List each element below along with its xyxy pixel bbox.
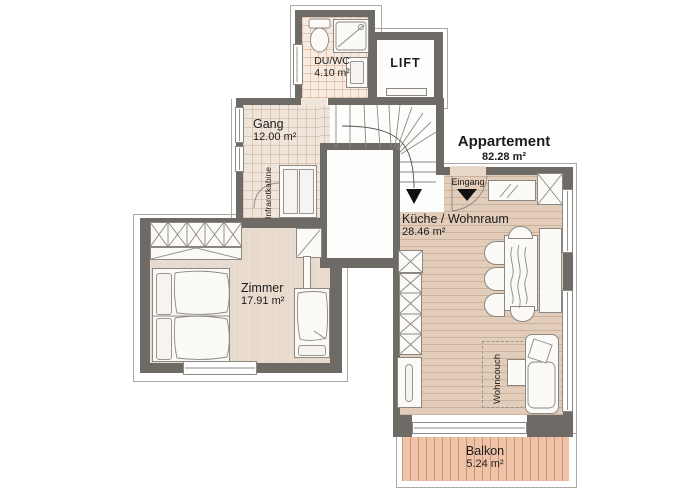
entry-wardrobe xyxy=(537,173,563,205)
wall xyxy=(236,98,300,105)
wall xyxy=(527,415,573,437)
room-name: DU/WC xyxy=(299,56,365,68)
infrared-cabin-label: Infrarotkabine xyxy=(264,163,274,219)
room-name: Balkon xyxy=(440,444,530,458)
kitchen-window-1 xyxy=(562,189,573,253)
kitchen-sink xyxy=(405,364,413,402)
gang-window-1 xyxy=(235,107,244,143)
wall xyxy=(328,98,443,105)
wall xyxy=(140,363,183,373)
living-window xyxy=(412,422,527,434)
chair xyxy=(484,293,505,317)
room-area: 28.46 m² xyxy=(402,226,509,238)
side-table xyxy=(507,359,526,386)
chair xyxy=(484,267,505,291)
wall xyxy=(140,218,150,373)
entrance-door-opening[interactable] xyxy=(450,166,486,176)
wall xyxy=(320,143,400,150)
kitchen-tall-cabinet xyxy=(399,273,422,355)
wall xyxy=(295,10,375,17)
gang-window-2 xyxy=(235,146,244,172)
couch-label: Wohncouch xyxy=(493,346,504,404)
entry-rack xyxy=(488,180,536,201)
room-label-balkon: Balkon 5.24 m² xyxy=(440,444,530,470)
room-name: Küche / Wohnraum xyxy=(402,212,509,226)
zimmer-window xyxy=(183,361,257,375)
room-label-gang: Gang 12.00 m² xyxy=(253,117,296,143)
room-label-kueche: Küche / Wohnraum 28.46 m² xyxy=(402,212,509,238)
envelope-kitchen-top xyxy=(443,163,576,164)
shower xyxy=(333,19,369,53)
infrared-cabin-door-left xyxy=(283,169,298,214)
room-area: 12.00 m² xyxy=(253,131,296,143)
room-area: 17.91 m² xyxy=(241,295,284,307)
room-label-lift: LIFT xyxy=(377,56,434,70)
pillow xyxy=(298,345,326,356)
kitchen-cabinet-top xyxy=(398,250,423,273)
stairwell-void xyxy=(327,150,393,258)
apartment-title: Appartement 82.28 m² xyxy=(438,134,570,163)
room-label-duwc: DU/WC 4.10 m² xyxy=(299,56,365,80)
entrance-label: Eingang xyxy=(448,177,488,187)
couch xyxy=(525,334,559,414)
wall xyxy=(368,32,377,105)
kitchen-window-2 xyxy=(562,290,573,412)
apartment-name: Appartement xyxy=(438,134,570,151)
wardrobe-front xyxy=(150,247,242,260)
pillow xyxy=(156,318,172,360)
wall xyxy=(320,258,400,268)
wall xyxy=(368,32,443,40)
mirror-wardrobe xyxy=(296,228,322,258)
room-area: 4.10 m² xyxy=(299,68,365,80)
envelope-right xyxy=(576,163,577,435)
wall xyxy=(330,258,342,372)
infrared-cabin-door-right xyxy=(299,169,314,214)
room-area: 5.24 m² xyxy=(440,458,530,470)
zimmer-door-leaf[interactable] xyxy=(303,256,311,290)
wall xyxy=(393,415,412,437)
wall xyxy=(434,32,443,105)
room-label-zimmer: Zimmer 17.91 m² xyxy=(241,281,284,307)
stairs-upper-flight xyxy=(330,105,436,148)
room-name: Zimmer xyxy=(241,281,284,295)
pillow xyxy=(156,273,172,315)
bench xyxy=(539,228,562,313)
duwc-door-opening[interactable] xyxy=(301,98,327,106)
room-name: Gang xyxy=(253,117,296,131)
dining-table xyxy=(504,235,538,311)
wardrobe xyxy=(150,222,242,247)
floor-plan: Appartement 82.28 m² DU/WC 4.10 m² LIFT … xyxy=(0,0,700,500)
chair xyxy=(484,241,505,265)
lift-door[interactable] xyxy=(386,88,427,96)
apartment-area: 82.28 m² xyxy=(438,151,570,163)
envelope-hall-left xyxy=(231,99,232,223)
